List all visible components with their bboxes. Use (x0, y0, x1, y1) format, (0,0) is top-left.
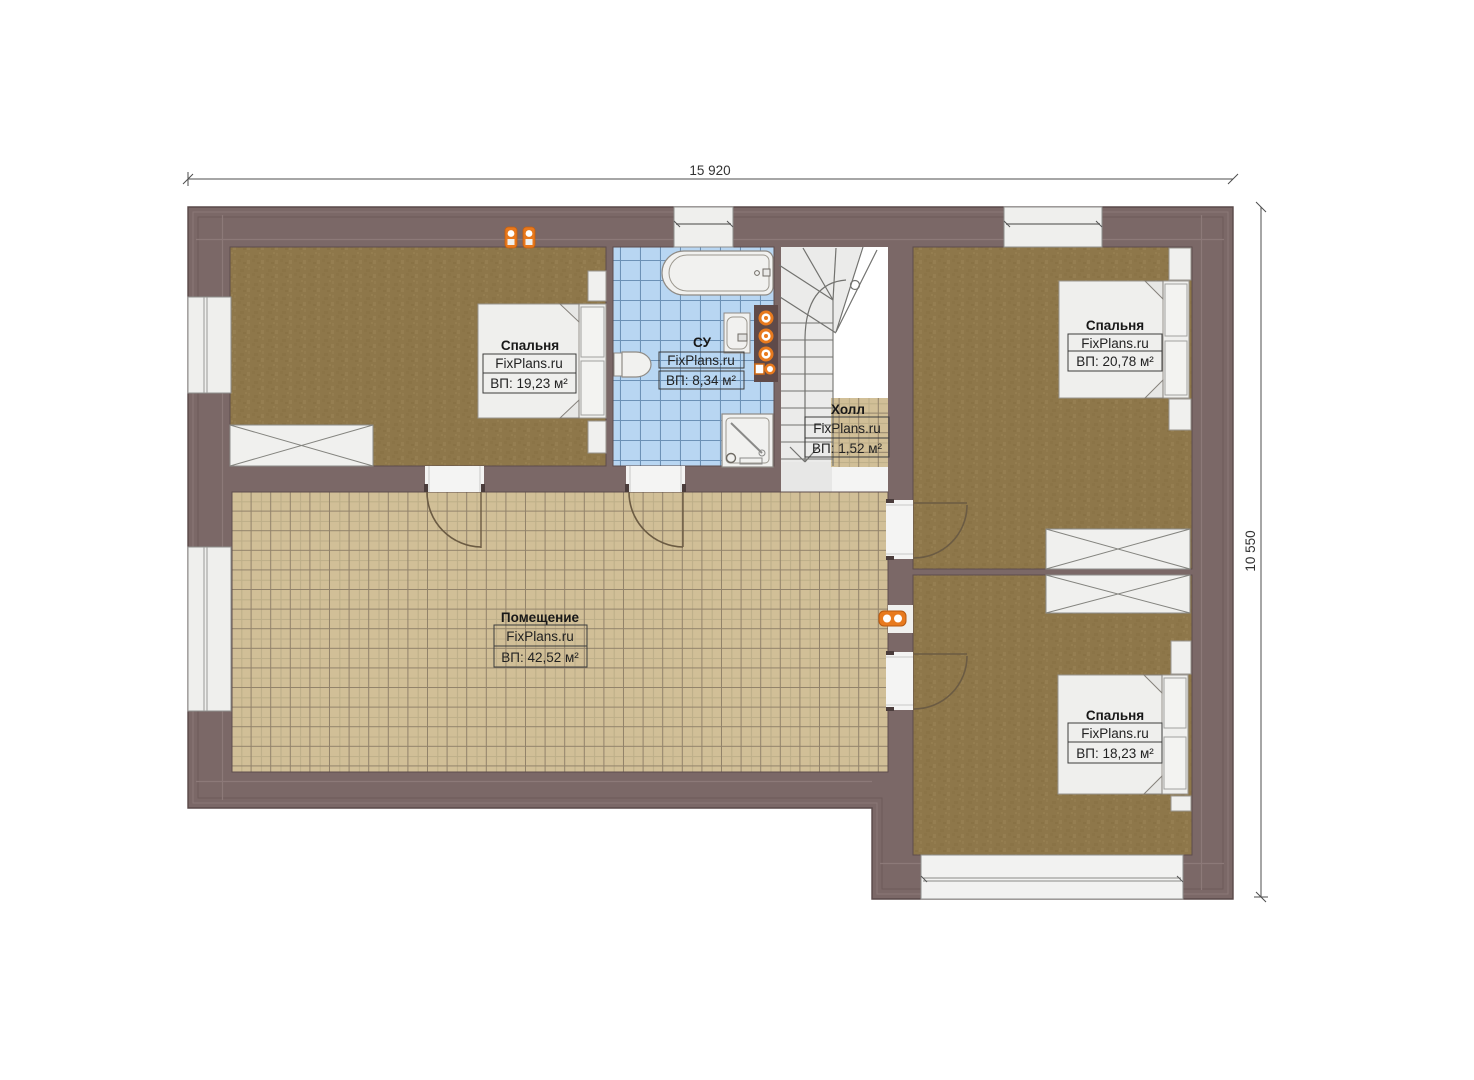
svg-text:ВП: 19,23 м²: ВП: 19,23 м² (490, 376, 568, 391)
svg-text:Спальня: Спальня (1086, 318, 1144, 333)
svg-text:ВП: 42,52 м²: ВП: 42,52 м² (501, 650, 579, 665)
svg-text:FixPlans.ru: FixPlans.ru (667, 353, 735, 368)
svg-text:FixPlans.ru: FixPlans.ru (1081, 336, 1149, 351)
svg-text:Помещение: Помещение (501, 610, 580, 625)
svg-text:FixPlans.ru: FixPlans.ru (506, 629, 574, 644)
svg-text:Спальня: Спальня (501, 338, 559, 353)
svg-text:СУ: СУ (693, 335, 712, 350)
svg-text:FixPlans.ru: FixPlans.ru (495, 356, 563, 371)
svg-text:FixPlans.ru: FixPlans.ru (1081, 726, 1149, 741)
svg-text:15 920: 15 920 (689, 163, 730, 178)
svg-text:FixPlans.ru: FixPlans.ru (813, 421, 881, 436)
svg-text:ВП: 8,34 м²: ВП: 8,34 м² (666, 373, 737, 388)
svg-text:10 550: 10 550 (1243, 530, 1258, 571)
svg-text:ВП: 1,52 м²: ВП: 1,52 м² (812, 441, 883, 456)
svg-text:ВП: 18,23 м²: ВП: 18,23 м² (1076, 746, 1154, 761)
svg-text:Холл: Холл (831, 402, 865, 417)
svg-text:Спальня: Спальня (1086, 708, 1144, 723)
svg-text:ВП: 20,78 м²: ВП: 20,78 м² (1076, 354, 1154, 369)
